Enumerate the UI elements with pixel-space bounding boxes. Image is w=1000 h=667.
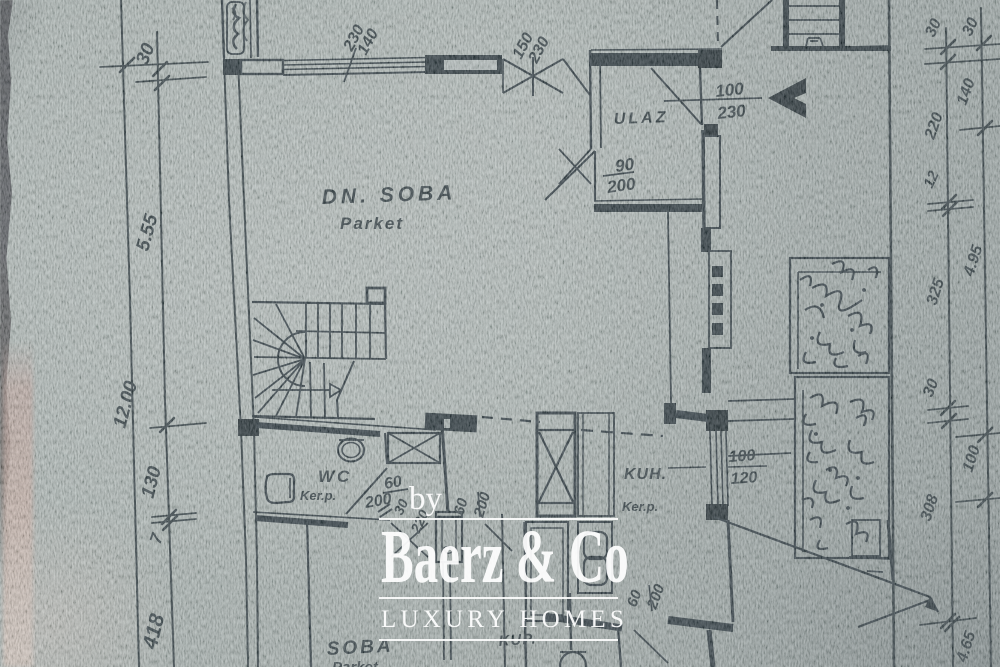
svg-text:30: 30 bbox=[959, 15, 982, 38]
svg-text:200: 200 bbox=[605, 174, 637, 197]
svg-text:120: 120 bbox=[730, 469, 758, 488]
svg-text:DN. SOBA: DN. SOBA bbox=[321, 181, 456, 209]
svg-text:200: 200 bbox=[643, 581, 668, 612]
svg-text:130: 130 bbox=[138, 464, 167, 500]
svg-text:200: 200 bbox=[363, 491, 393, 513]
svg-text:7: 7 bbox=[146, 530, 168, 547]
svg-text:WC: WC bbox=[318, 467, 352, 486]
svg-text:4.95: 4.95 bbox=[960, 242, 986, 279]
svg-text:140: 140 bbox=[954, 76, 979, 107]
svg-text:418: 418 bbox=[138, 611, 169, 652]
svg-text:12.00: 12.00 bbox=[110, 379, 143, 431]
svg-text:100: 100 bbox=[728, 447, 756, 466]
svg-text:230: 230 bbox=[715, 101, 747, 123]
svg-text:325: 325 bbox=[924, 276, 949, 308]
svg-text:4.65: 4.65 bbox=[953, 628, 979, 665]
svg-text:30: 30 bbox=[920, 377, 942, 400]
svg-text:KUH.: KUH. bbox=[624, 466, 667, 483]
svg-text:30: 30 bbox=[922, 16, 945, 39]
svg-text:Ker.p.: Ker.p. bbox=[300, 488, 336, 503]
svg-text:308: 308 bbox=[918, 492, 942, 523]
svg-text:60: 60 bbox=[383, 473, 404, 493]
svg-text:Ker.p.: Ker.p. bbox=[622, 499, 658, 514]
svg-text:12: 12 bbox=[920, 168, 943, 191]
svg-text:100: 100 bbox=[960, 443, 984, 474]
svg-text:220: 220 bbox=[921, 110, 946, 142]
svg-text:Parket: Parket bbox=[340, 214, 404, 233]
svg-text:100: 100 bbox=[714, 79, 745, 101]
svg-text:ULAZ: ULAZ bbox=[614, 109, 669, 128]
svg-text:5.55: 5.55 bbox=[133, 212, 163, 254]
svg-text:Parket: Parket bbox=[332, 659, 379, 667]
